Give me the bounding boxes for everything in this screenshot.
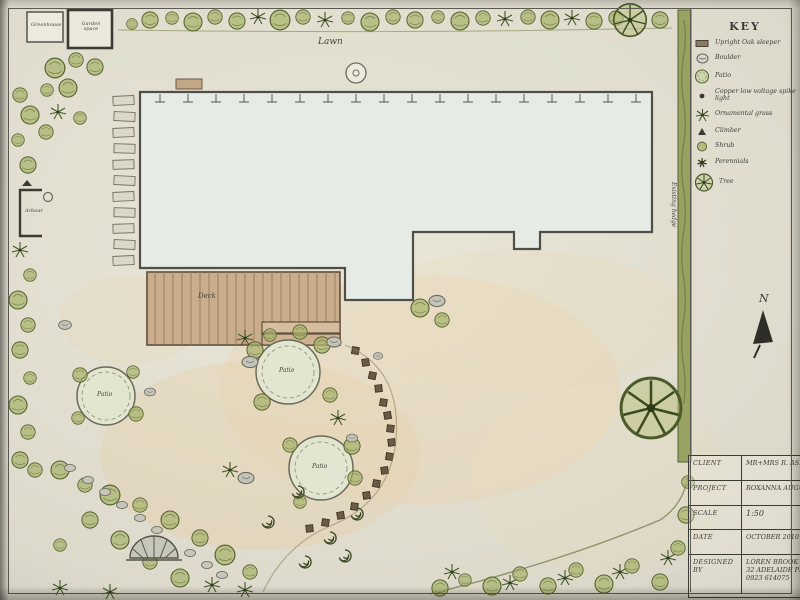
sheet-border — [8, 8, 792, 594]
plan-margin-divider — [690, 8, 691, 592]
scanned-garden-plan-photo: Greenhouse Garden space Lawn Deck Arbour… — [0, 0, 800, 600]
